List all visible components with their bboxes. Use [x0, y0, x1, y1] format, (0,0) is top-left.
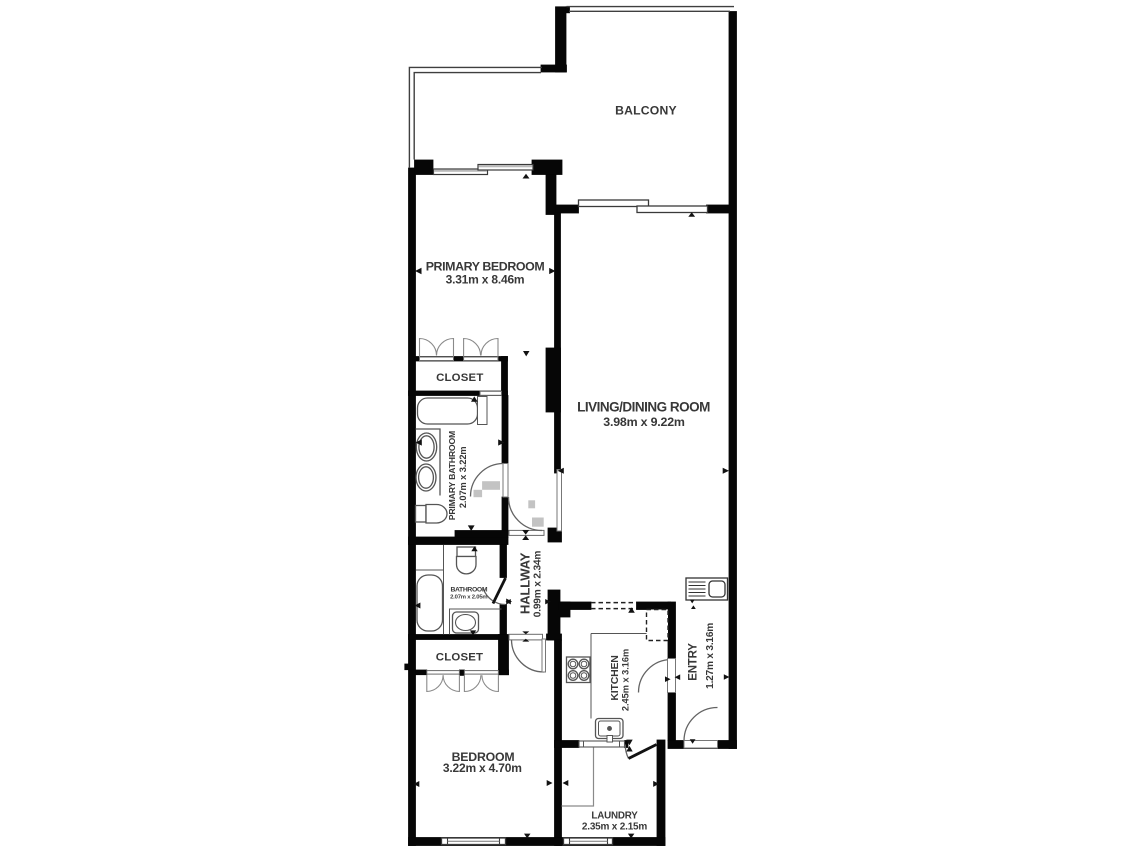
svg-text:0.99m x 2.34m: 0.99m x 2.34m [532, 551, 543, 618]
svg-text:BATHROOM: BATHROOM [450, 587, 487, 594]
svg-text:1.27m x 3.16m: 1.27m x 3.16m [705, 623, 716, 689]
svg-text:ENTRY: ENTRY [687, 643, 699, 681]
svg-text:2.45m x 3.16m: 2.45m x 3.16m [621, 649, 631, 711]
svg-text:HALLWAY: HALLWAY [517, 552, 532, 614]
svg-text:2.07m x 2.05m: 2.07m x 2.05m [450, 595, 487, 601]
svg-text:CLOSET: CLOSET [436, 652, 483, 664]
svg-text:2.35m x 2.15m: 2.35m x 2.15m [582, 822, 648, 833]
svg-text:3.22m x 4.70m: 3.22m x 4.70m [443, 761, 522, 775]
svg-text:3.31m x 8.46m: 3.31m x 8.46m [446, 273, 525, 287]
svg-text:LIVING/DINING ROOM: LIVING/DINING ROOM [577, 400, 710, 415]
svg-text:2.07m x 3.22m: 2.07m x 3.22m [458, 446, 468, 508]
svg-text:PRIMARY BATHROOM: PRIMARY BATHROOM [447, 431, 457, 520]
svg-text:CLOSET: CLOSET [436, 372, 483, 384]
svg-text:LAUNDRY: LAUNDRY [591, 811, 638, 822]
svg-text:3.98m x 9.22m: 3.98m x 9.22m [603, 415, 685, 429]
svg-text:KITCHEN: KITCHEN [609, 655, 621, 700]
svg-text:PRIMARY BEDROOM: PRIMARY BEDROOM [426, 260, 545, 274]
svg-text:BALCONY: BALCONY [615, 104, 677, 118]
